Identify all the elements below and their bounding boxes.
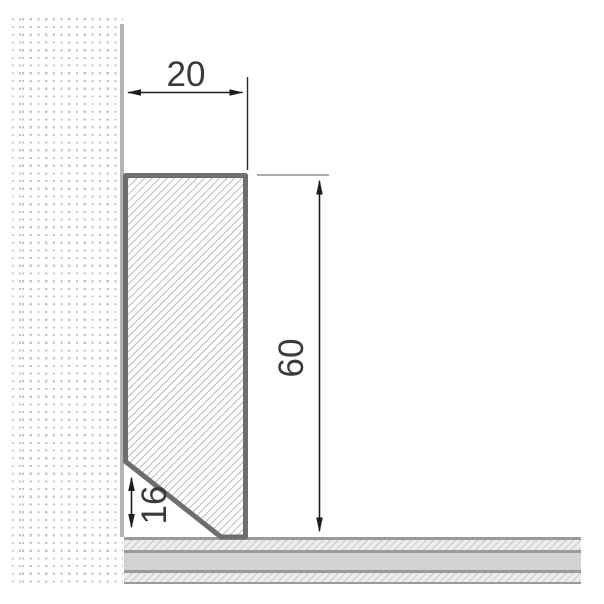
height-arrowhead-top <box>316 180 323 195</box>
dimension-height-label: 60 <box>272 339 311 378</box>
technical-drawing-canvas: 20 60 16 <box>0 0 604 604</box>
width-arrowhead-right <box>230 89 244 96</box>
width-arrowhead-left <box>127 89 141 96</box>
profile-drawing-overlay: 20 60 16 <box>0 0 604 604</box>
dimension-height: 60 <box>257 175 329 533</box>
notch-arrowhead-top <box>128 477 135 492</box>
skirting-profile-cross-section <box>126 176 246 538</box>
height-arrowhead-bottom <box>316 518 323 533</box>
dimension-width-label: 20 <box>167 55 206 94</box>
dimension-width: 20 <box>127 55 248 170</box>
dimension-notch-label: 16 <box>135 486 174 525</box>
notch-arrowhead-bottom <box>128 514 135 529</box>
